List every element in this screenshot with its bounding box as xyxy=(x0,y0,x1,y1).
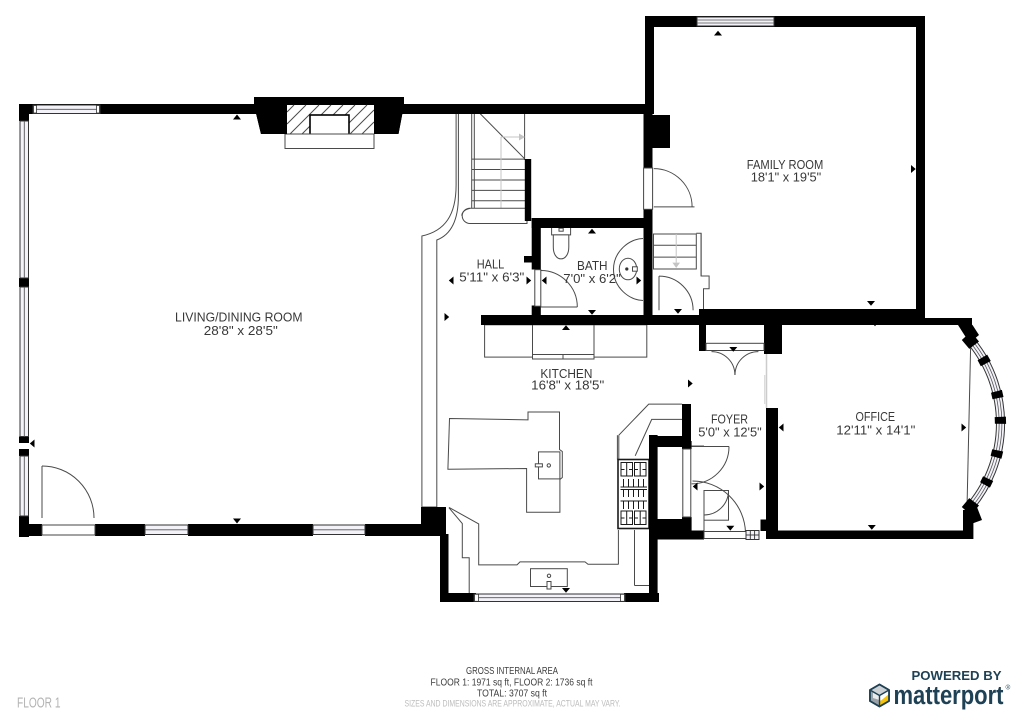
svg-text:7'0" x 6'2": 7'0" x 6'2" xyxy=(563,272,621,286)
svg-text:FLOOR 1: FLOOR 1 xyxy=(17,696,61,712)
svg-text:BATH: BATH xyxy=(577,258,608,273)
svg-text:SIZES AND DIMENSIONS ARE APPRO: SIZES AND DIMENSIONS ARE APPROXIMATE, AC… xyxy=(405,699,621,709)
svg-text:18'1" x 19'5": 18'1" x 19'5" xyxy=(751,171,822,185)
svg-text:LIVING/DINING ROOM: LIVING/DINING ROOM xyxy=(175,310,303,325)
svg-text:®: ® xyxy=(1006,684,1011,692)
svg-text:HALL: HALL xyxy=(477,257,505,272)
svg-text:5'0" x 12'5": 5'0" x 12'5" xyxy=(698,426,762,440)
svg-text:5'11" x 6'3": 5'11" x 6'3" xyxy=(459,271,524,285)
svg-text:GROSS INTERNAL AREA: GROSS INTERNAL AREA xyxy=(466,666,558,677)
svg-text:FLOOR 1: 1971 sq ft, FLOOR 2:: FLOOR 1: 1971 sq ft, FLOOR 2: 1736 sq ft xyxy=(431,678,593,689)
svg-text:28'8" x 28'5": 28'8" x 28'5" xyxy=(204,324,278,338)
svg-text:matterport: matterport xyxy=(894,682,1004,710)
svg-text:FOYER: FOYER xyxy=(711,412,748,427)
svg-text:16'8" x 18'5": 16'8" x 18'5" xyxy=(531,379,604,393)
svg-text:12'11" x 14'1": 12'11" x 14'1" xyxy=(836,424,915,438)
svg-text:OFFICE: OFFICE xyxy=(856,409,896,424)
svg-text:POWERED BY: POWERED BY xyxy=(912,668,1002,683)
